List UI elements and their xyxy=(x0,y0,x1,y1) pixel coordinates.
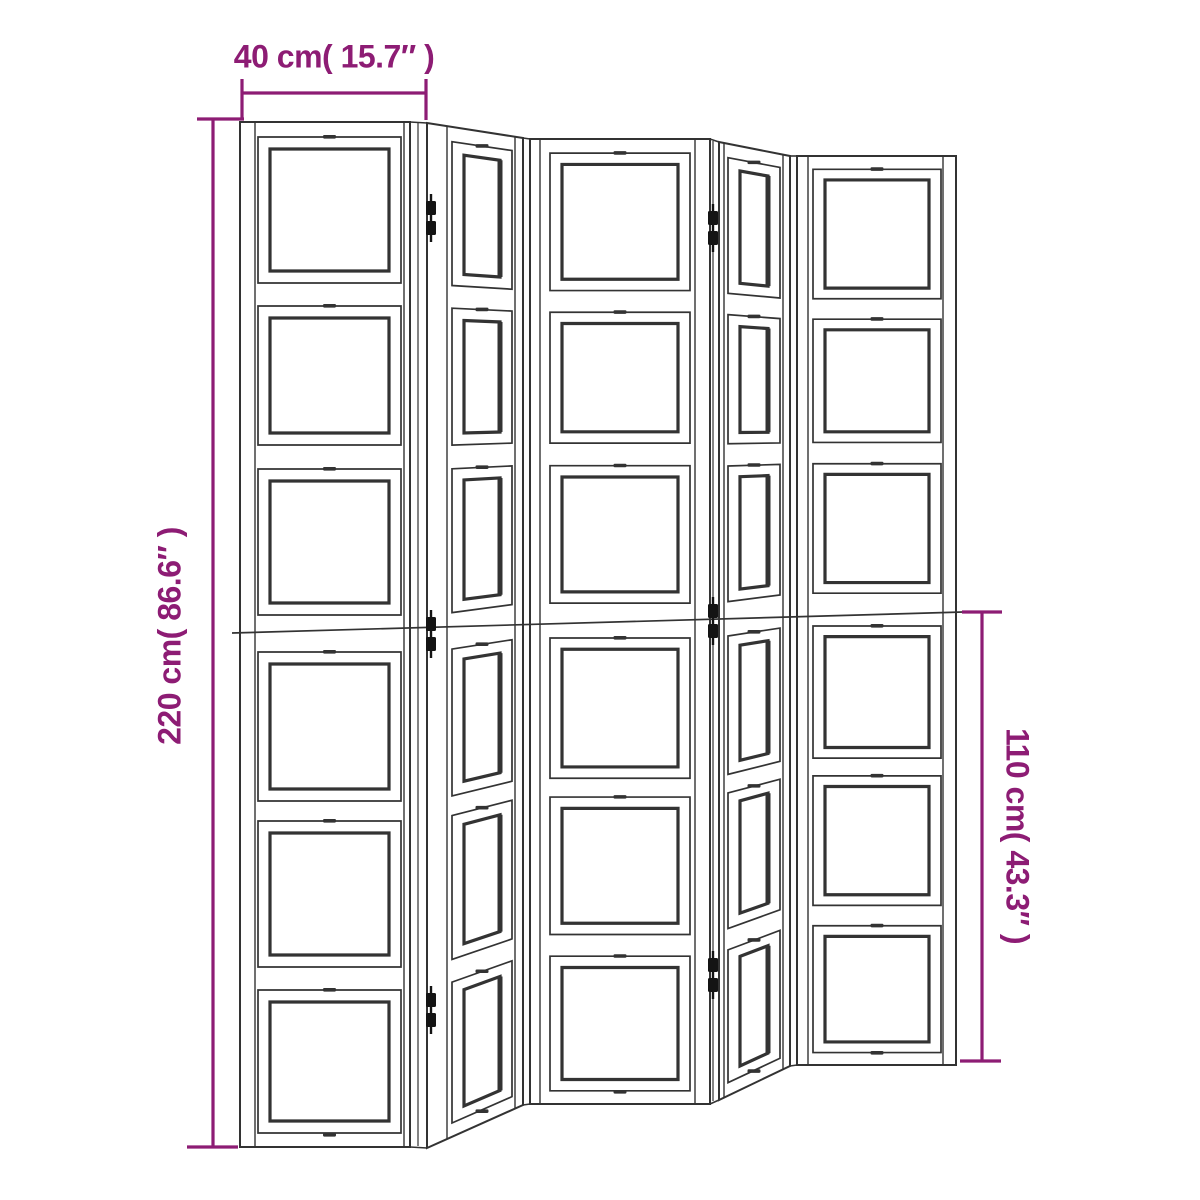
total-height-dimension-label: 220 cm( 86.6″ ) xyxy=(152,527,189,745)
product-dimension-diagram: 40 cm( 15.7″ ) 220 cm( 86.6″ ) 110 cm( 4… xyxy=(0,0,1200,1200)
half-height-dimension-label: 110 cm( 43.3″ ) xyxy=(999,728,1036,944)
panel-width-dimension-label: 40 cm( 15.7″ ) xyxy=(234,39,434,76)
